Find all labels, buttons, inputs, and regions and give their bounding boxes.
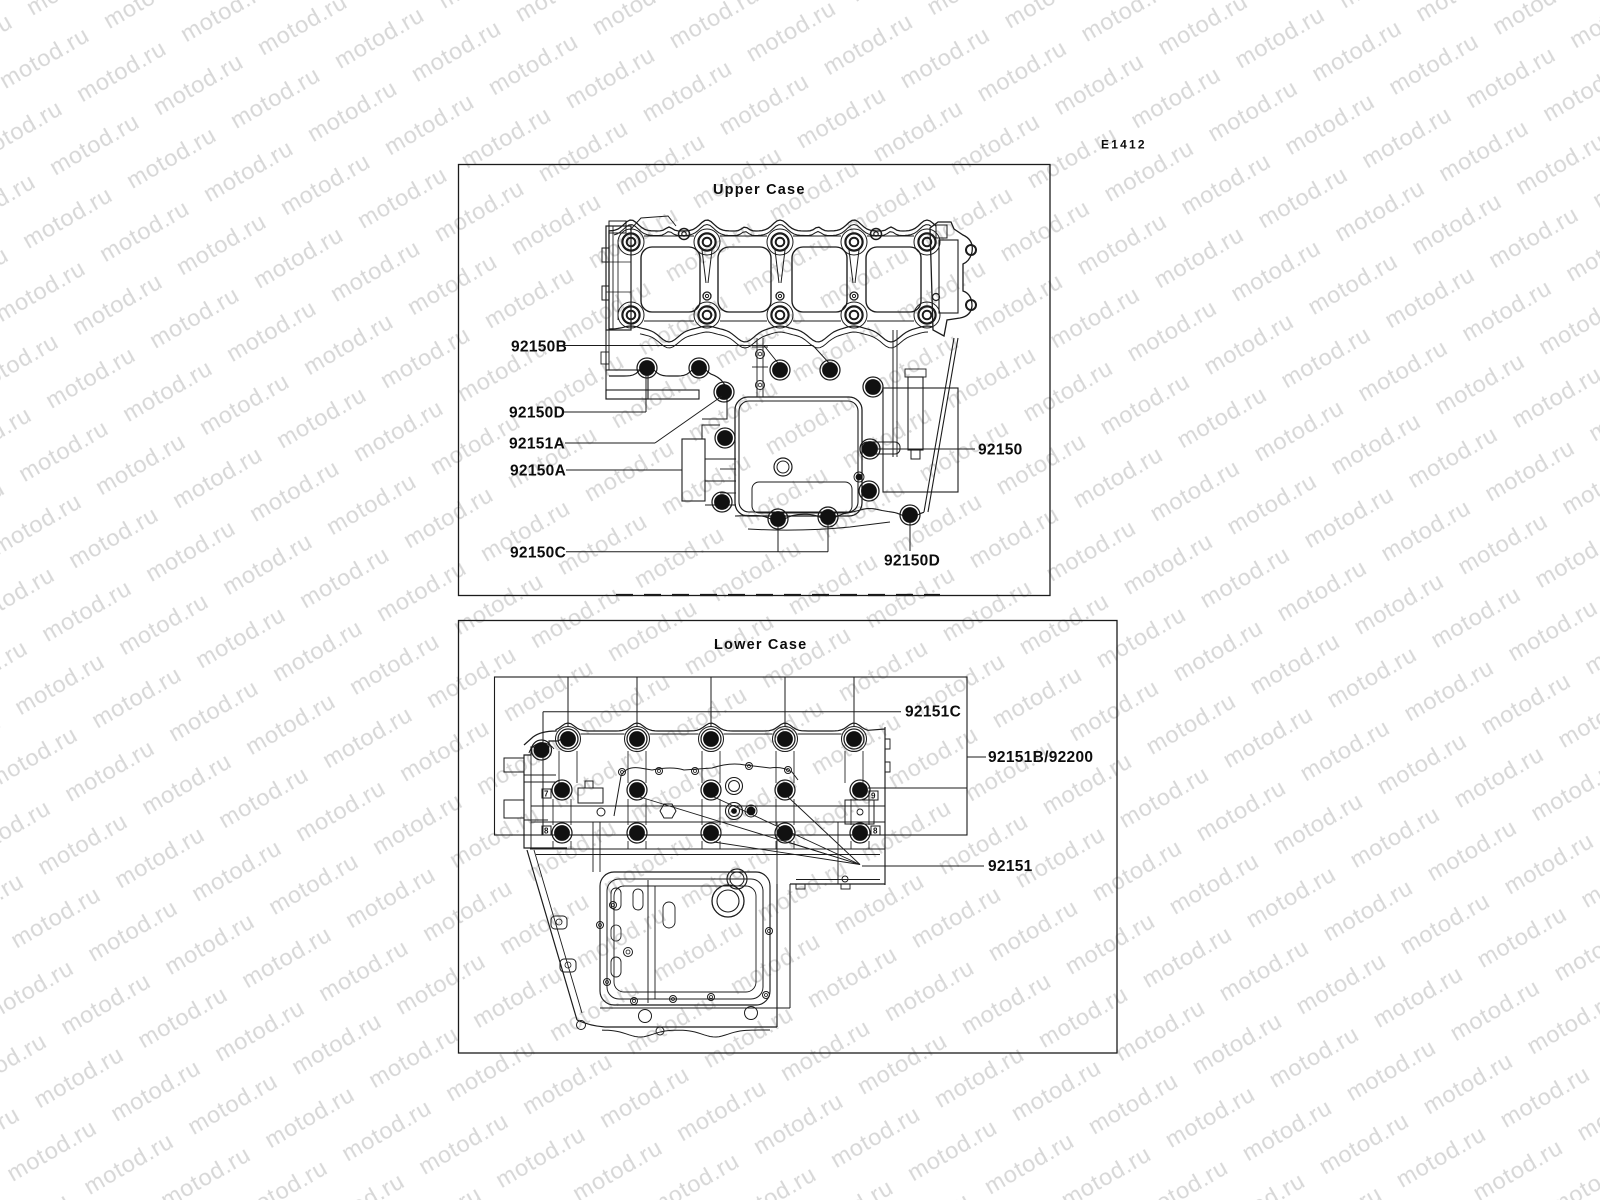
- svg-text:8: 8: [873, 827, 878, 836]
- svg-text:8: 8: [544, 827, 549, 836]
- svg-text:7: 7: [544, 790, 549, 799]
- svg-text:Lower Case: Lower Case: [714, 637, 807, 653]
- svg-text:92151A: 92151A: [509, 436, 565, 453]
- svg-text:Upper Case: Upper Case: [713, 182, 806, 198]
- svg-text:92150D: 92150D: [884, 553, 940, 570]
- svg-text:92150D: 92150D: [509, 405, 565, 422]
- svg-text:E1412: E1412: [1101, 138, 1147, 152]
- svg-text:92150: 92150: [978, 442, 1023, 459]
- svg-text:92150C: 92150C: [510, 545, 566, 562]
- svg-text:92150B: 92150B: [511, 339, 567, 356]
- svg-text:92151: 92151: [988, 858, 1033, 875]
- svg-text:92151B/92200: 92151B/92200: [988, 749, 1093, 766]
- svg-text:92150A: 92150A: [510, 463, 566, 480]
- svg-text:92151C: 92151C: [905, 704, 961, 721]
- svg-text:9: 9: [871, 792, 876, 801]
